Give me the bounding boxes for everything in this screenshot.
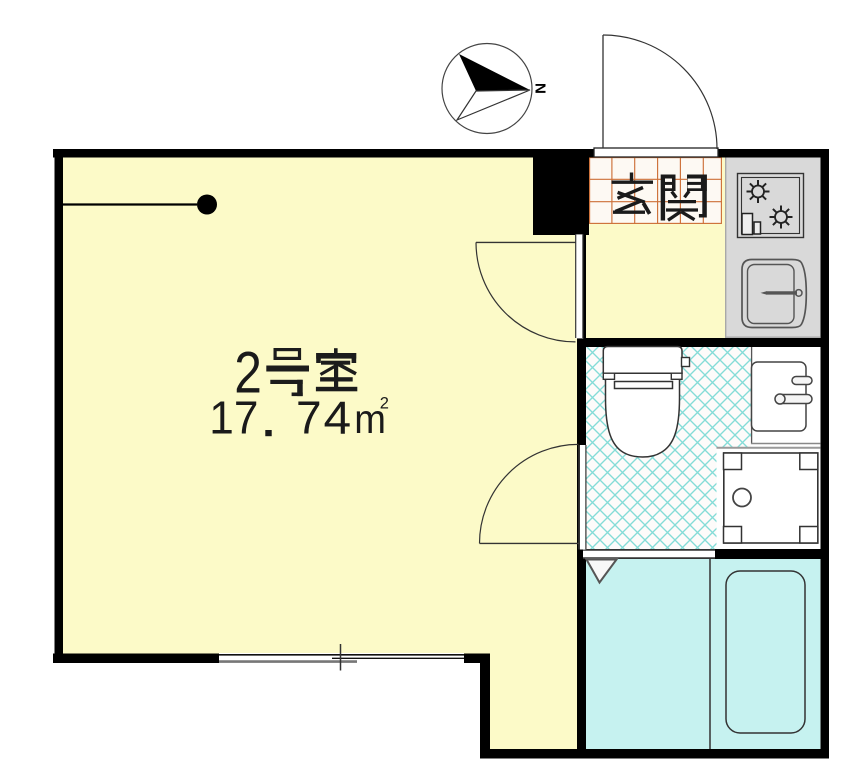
svg-text:4: 4: [324, 393, 352, 444]
svg-text:N: N: [532, 83, 549, 94]
svg-text:2: 2: [380, 395, 389, 413]
svg-text:17: 17: [209, 391, 258, 443]
svg-text:7: 7: [296, 391, 322, 443]
